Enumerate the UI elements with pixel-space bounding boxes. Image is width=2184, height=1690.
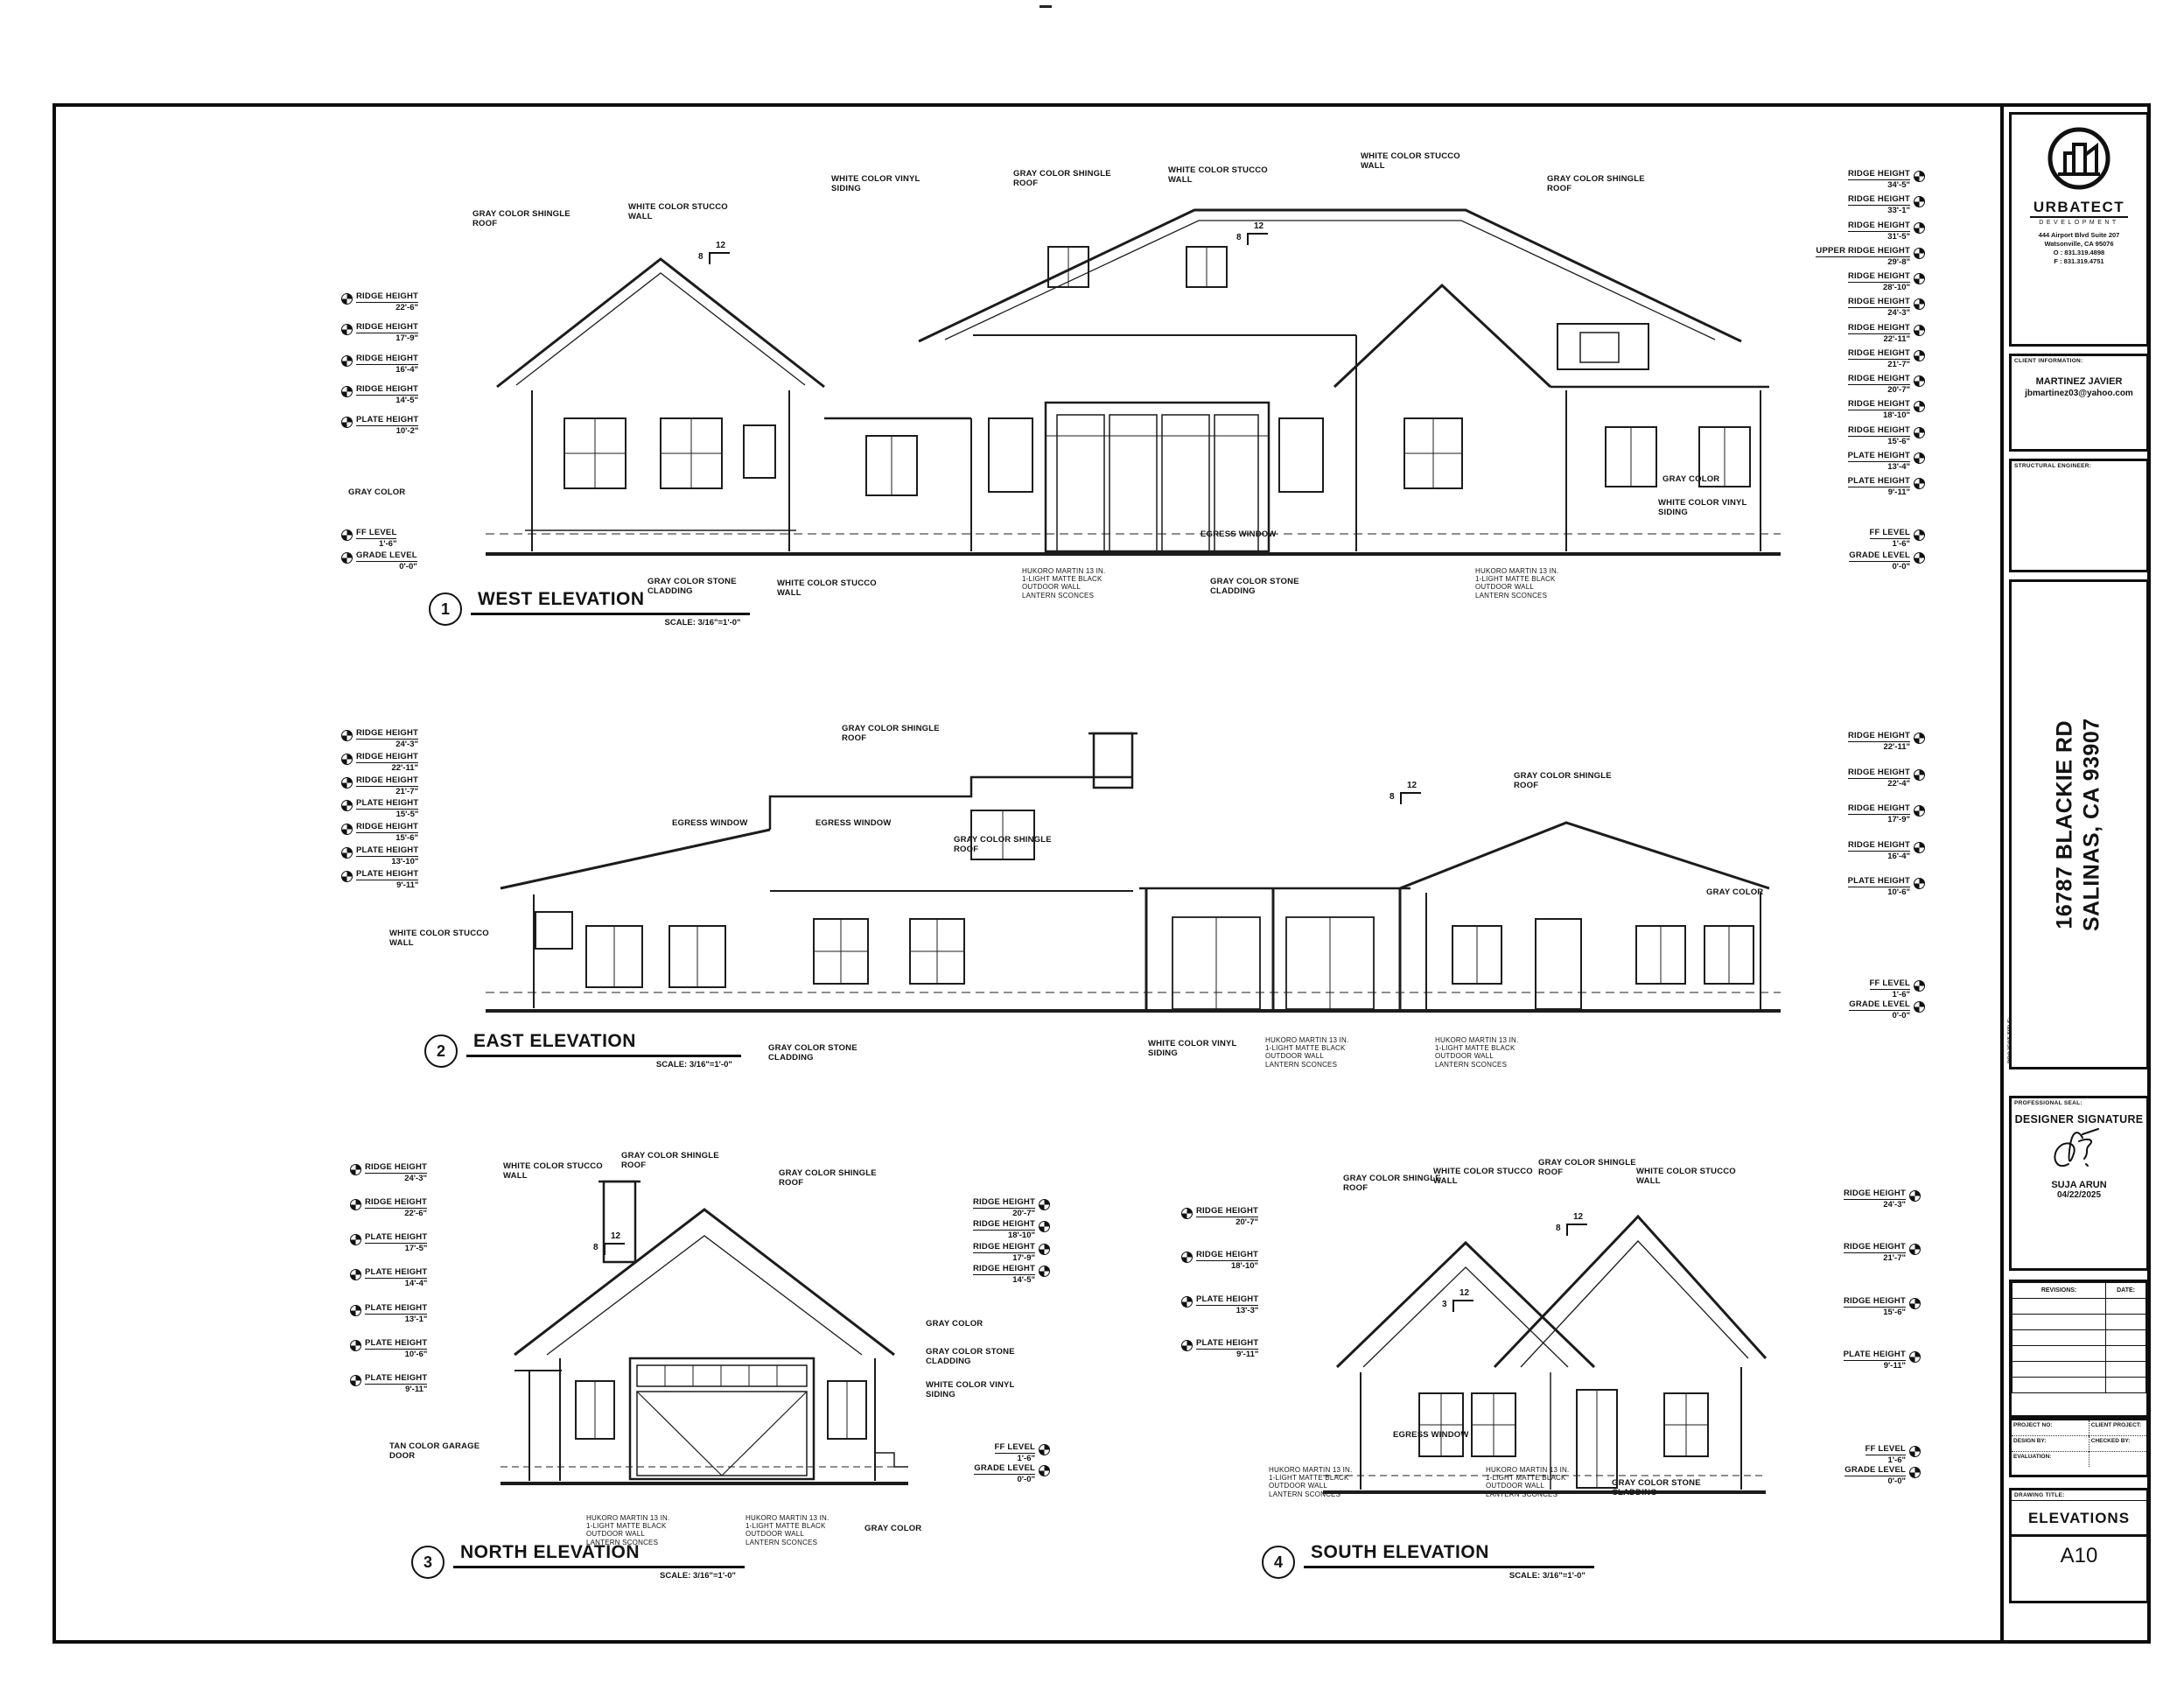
level-marker-icon — [350, 1199, 361, 1210]
dimension-label: RIDGE HEIGHT18'-10" — [919, 1219, 1050, 1240]
north-right-base-dimensions: FF LEVEL1'-6" GRADE LEVEL0'-0" — [919, 1442, 1050, 1484]
south-elevation: RIDGE HEIGHT20'-7" RIDGE HEIGHT18'-10" P… — [1164, 1138, 1934, 1602]
professional-seal-box: PROFESSIONAL SEAL: DESIGNER SIGNATURE SU… — [2009, 1096, 2149, 1271]
level-marker-icon — [1909, 1298, 1921, 1309]
level-marker-icon — [1914, 273, 1925, 284]
material-callout: GRAY COLOR STONE CLADDING — [768, 1044, 871, 1063]
level-marker-icon — [1039, 1465, 1050, 1476]
dimension-label: RIDGE HEIGHT20'-7" — [1181, 1206, 1317, 1227]
seal-section-label: PROFESSIONAL SEAL: — [2012, 1098, 2085, 1106]
project-no-label: PROJECT NO: — [2012, 1420, 2089, 1436]
level-marker-icon — [350, 1234, 361, 1245]
level-marker-icon — [1909, 1244, 1921, 1255]
level-marker-icon — [1914, 350, 1925, 361]
client-section-label: CLIENT INFORMATION: — [2012, 356, 2146, 364]
level-marker-icon — [1909, 1467, 1921, 1478]
dimension-label: RIDGE HEIGHT17'-9" — [341, 322, 472, 343]
level-marker-icon — [341, 754, 353, 765]
dimension-label: RIDGE HEIGHT22'-11" — [1789, 323, 1925, 344]
dimension-label: RIDGE HEIGHT16'-4" — [341, 354, 472, 375]
dimension-label: RIDGE HEIGHT17'-9" — [919, 1242, 1050, 1263]
east-elevation-drawing — [481, 709, 1785, 1037]
revision-row — [2012, 1362, 2146, 1378]
level-marker-icon — [1039, 1221, 1050, 1232]
firm-address-line2: Watsonville, CA 95076 — [2039, 240, 2120, 249]
north-elevation-drawing — [499, 1155, 910, 1505]
level-marker-icon — [341, 293, 353, 305]
level-marker-icon — [350, 1269, 361, 1280]
south-left-dimensions: RIDGE HEIGHT20'-7" RIDGE HEIGHT18'-10" P… — [1181, 1206, 1317, 1359]
dimension-label: RIDGE HEIGHT34'-5" — [1789, 169, 1925, 190]
material-callout: GRAY COLOR — [348, 488, 405, 498]
dimension-label: RIDGE HEIGHT22'-11" — [341, 752, 472, 773]
elevation-scale: SCALE: 3/16"=1'-0" — [665, 618, 750, 628]
level-marker-icon — [1914, 196, 1925, 207]
east-elevation: RIDGE HEIGHT24'-3" RIDGE HEIGHT22'-11" R… — [341, 709, 1925, 1129]
south-right-dimensions: RIDGE HEIGHT24'-3" RIDGE HEIGHT21'-7" RI… — [1776, 1189, 1921, 1371]
revision-row — [2012, 1299, 2146, 1315]
level-marker-icon — [1181, 1296, 1193, 1308]
west-right-base-dimensions: FF LEVEL1'-6" GRADE LEVEL0'-0" — [1789, 528, 1925, 572]
material-callout: WHITE COLOR STUCCO WALL — [389, 929, 493, 949]
material-callout: TAN COLOR GARAGE DOOR — [389, 1442, 493, 1462]
level-marker-icon — [1181, 1252, 1193, 1263]
north-elevation-title: 3 NORTH ELEVATION SCALE: 3/16"=1'-0" — [411, 1542, 745, 1581]
east-left-dimensions: RIDGE HEIGHT24'-3" RIDGE HEIGHT22'-11" R… — [341, 728, 472, 890]
dimension-label: PLATE HEIGHT14'-4" — [350, 1267, 481, 1288]
level-marker-icon — [1181, 1208, 1193, 1219]
dimension-label: RIDGE HEIGHT21'-7" — [1776, 1242, 1921, 1263]
level-marker-icon — [1914, 769, 1925, 781]
project-address-line1: 16787 BLACKIE RD — [2052, 718, 2079, 931]
revision-row — [2012, 1330, 2146, 1346]
west-left-base-dimensions: FF LEVEL1'-6" GRADE LEVEL0'-0" — [341, 528, 472, 572]
dimension-label: PLATE HEIGHT15'-5" — [341, 798, 472, 819]
elevation-title: SOUTH ELEVATION — [1304, 1542, 1594, 1568]
elevation-title: EAST ELEVATION — [466, 1031, 741, 1057]
sheet-title: ELEVATIONS — [2012, 1501, 2146, 1537]
west-elevation-title: 1 WEST ELEVATION SCALE: 3/16"=1'-0" — [429, 589, 750, 628]
level-marker-icon — [1909, 1190, 1921, 1202]
level-marker-icon — [1039, 1199, 1050, 1210]
dimension-label: GRADE LEVEL0'-0" — [919, 1463, 1050, 1484]
east-right-dimensions: RIDGE HEIGHT22'-11" RIDGE HEIGHT22'-4" R… — [1789, 731, 1925, 897]
firm-tagline: DEVELOPMENT — [2039, 220, 2118, 226]
revisions-table-box: REVISIONS: DATE: — [2009, 1280, 2149, 1418]
level-marker-icon — [1914, 552, 1925, 564]
firm-logo-box: URBATECT DEVELOPMENT 444 Airport Blvd Su… — [2009, 112, 2149, 347]
level-marker-icon — [341, 529, 353, 541]
level-marker-icon — [1914, 733, 1925, 744]
dimension-label: GRADE LEVEL0'-0" — [341, 550, 472, 572]
dimension-label: PLATE HEIGHT9'-11" — [1181, 1338, 1317, 1359]
material-callout: GRAY COLOR STONE CLADDING — [926, 1348, 1029, 1367]
material-callout: GRAY COLOR — [864, 1525, 921, 1534]
designer-name: SUJA ARUN — [2051, 1180, 2106, 1190]
dimension-label: GRADE LEVEL0'-0" — [1789, 999, 1925, 1020]
fixture-note: HUKORO MARTIN 13 IN. 1-LIGHT MATTE BLACK… — [1435, 1036, 1526, 1069]
dimension-label: GRADE LEVEL0'-0" — [1789, 550, 1925, 572]
dimension-label: RIDGE HEIGHT22'-4" — [1789, 768, 1925, 789]
client-name: MARTINEZ JAVIER — [2012, 376, 2146, 387]
signature-icon — [2044, 1125, 2114, 1175]
checked-by-label: CHECKED BY: — [2089, 1436, 2146, 1452]
firm-phone-office: O : 831.319.4898 — [2039, 249, 2120, 257]
project-info-box: PROJECT NO: CLIENT PROJECT: DESIGN BY: C… — [2009, 1418, 2149, 1477]
designer-signature-label: DESIGNER SIGNATURE — [2015, 1113, 2144, 1125]
west-elevation: RIDGE HEIGHT22'-6" RIDGE HEIGHT17'-9" RI… — [341, 130, 1925, 663]
level-marker-icon — [1914, 298, 1925, 310]
elevation-number-bubble: 2 — [424, 1034, 458, 1068]
dimension-label: FF LEVEL1'-6" — [1789, 528, 1925, 549]
dimension-label: RIDGE HEIGHT22'-6" — [341, 291, 472, 312]
elevation-scale: SCALE: 3/16"=1'-0" — [656, 1060, 741, 1069]
dimension-label: UPPER RIDGE HEIGHT29'-8" — [1789, 246, 1925, 267]
level-marker-icon — [1914, 401, 1925, 412]
level-marker-icon — [1914, 842, 1925, 853]
dimension-label: RIDGE HEIGHT33'-1" — [1789, 194, 1925, 215]
material-callout: WHITE COLOR VINYL SIDING — [926, 1381, 1029, 1400]
level-marker-icon — [1039, 1266, 1050, 1277]
level-marker-icon — [341, 824, 353, 835]
level-marker-icon — [341, 871, 353, 882]
level-marker-icon — [350, 1164, 361, 1175]
east-right-base-dimensions: FF LEVEL1'-6" GRADE LEVEL0'-0" — [1789, 978, 1925, 1020]
west-right-dimensions: RIDGE HEIGHT34'-5" RIDGE HEIGHT33'-1" RI… — [1789, 169, 1925, 497]
dimension-label: PLATE HEIGHT9'-11" — [1776, 1350, 1921, 1371]
dimension-label: PLATE HEIGHT13'-4" — [1789, 451, 1925, 472]
dimension-label: RIDGE HEIGHT22'-6" — [350, 1197, 481, 1218]
level-marker-icon — [341, 386, 353, 397]
dimension-label: PLATE HEIGHT13'-1" — [350, 1303, 481, 1324]
west-elevation-drawing — [481, 156, 1785, 567]
level-marker-icon — [1914, 980, 1925, 992]
design-by-label: DESIGN BY: — [2012, 1436, 2089, 1452]
dimension-label: RIDGE HEIGHT16'-4" — [1789, 840, 1925, 861]
dimension-label: RIDGE HEIGHT28'-10" — [1789, 271, 1925, 292]
north-elevation: RIDGE HEIGHT24'-3" RIDGE HEIGHT22'-6" PL… — [341, 1138, 1146, 1602]
blank-cell — [2089, 1452, 2146, 1467]
project-address-line2: SALINAS, CA 93907 — [2079, 718, 2106, 931]
level-marker-icon — [1914, 1001, 1925, 1013]
dimension-label: FF LEVEL1'-6" — [1776, 1444, 1921, 1465]
structural-section-label: STRUCTURAL ENGINEER: — [2012, 461, 2146, 469]
dimension-label: GRADE LEVEL0'-0" — [1776, 1465, 1921, 1486]
material-callout: WHITE COLOR STUCCO WALL — [777, 579, 880, 599]
level-marker-icon — [1909, 1446, 1921, 1457]
level-marker-icon — [1914, 248, 1925, 259]
level-marker-icon — [1914, 222, 1925, 234]
sheet-number: A10 — [2012, 1537, 2146, 1575]
dimension-label: FF LEVEL1'-6" — [919, 1442, 1050, 1463]
north-right-dimensions: RIDGE HEIGHT20'-7" RIDGE HEIGHT18'-10" R… — [919, 1197, 1050, 1285]
project-section-label: PROJECT TITLE: — [2007, 1017, 2013, 1063]
elevation-title: NORTH ELEVATION — [453, 1542, 745, 1568]
dimension-label: RIDGE HEIGHT24'-3" — [350, 1162, 481, 1183]
dimension-label: PLATE HEIGHT9'-11" — [350, 1373, 481, 1394]
fixture-note: HUKORO MARTIN 13 IN. 1-LIGHT MATTE BLACK… — [1265, 1036, 1356, 1069]
material-callout: WHITE COLOR VINYL SIDING — [1148, 1040, 1251, 1059]
elevation-title: WEST ELEVATION — [471, 589, 750, 615]
drawing-title-box: DRAWING TITLE: ELEVATIONS A10 — [2009, 1488, 2149, 1603]
dimension-label: RIDGE HEIGHT20'-7" — [1789, 374, 1925, 395]
registration-mark — [1039, 5, 1052, 8]
material-callout: GRAY COLOR — [926, 1320, 983, 1329]
dimension-label: RIDGE HEIGHT17'-9" — [1789, 803, 1925, 824]
west-left-dimensions: RIDGE HEIGHT22'-6" RIDGE HEIGHT17'-9" RI… — [341, 291, 472, 436]
revisions-header: REVISIONS: — [2012, 1283, 2106, 1299]
dimension-label: PLATE HEIGHT10'-6" — [350, 1338, 481, 1359]
dimension-label: PLATE HEIGHT10'-2" — [341, 415, 472, 436]
dimension-label: PLATE HEIGHT9'-11" — [341, 869, 472, 890]
project-title-box: 16787 BLACKIE RD SALINAS, CA 93907 PROJE… — [2009, 579, 2149, 1069]
level-marker-icon — [1914, 452, 1925, 464]
dimension-label: RIDGE HEIGHT15'-6" — [341, 822, 472, 843]
level-marker-icon — [341, 324, 353, 335]
firm-name: URBATECT — [2030, 199, 2128, 218]
level-marker-icon — [1039, 1244, 1050, 1255]
fixture-note: HUKORO MARTIN 13 IN. 1-LIGHT MATTE BLACK… — [745, 1514, 836, 1546]
dimension-label: PLATE HEIGHT9'-11" — [1789, 476, 1925, 497]
revision-date-header: DATE: — [2106, 1283, 2146, 1299]
titleblock-separator — [2000, 103, 2004, 1644]
elevation-number-bubble: 3 — [411, 1546, 444, 1579]
dimension-label: RIDGE HEIGHT20'-7" — [919, 1197, 1050, 1218]
dimension-label: RIDGE HEIGHT22'-11" — [1789, 731, 1925, 752]
level-marker-icon — [350, 1340, 361, 1351]
structural-engineer-box: STRUCTURAL ENGINEER: — [2009, 459, 2149, 572]
dimension-label: RIDGE HEIGHT18'-10" — [1181, 1250, 1317, 1271]
fixture-note: HUKORO MARTIN 13 IN. 1-LIGHT MATTE BLACK… — [1475, 567, 1566, 600]
level-marker-icon — [1914, 427, 1925, 438]
dimension-label: PLATE HEIGHT10'-6" — [1789, 876, 1925, 897]
dimension-label: RIDGE HEIGHT24'-3" — [1776, 1189, 1921, 1210]
drawing-title-section-label: DRAWING TITLE: — [2012, 1490, 2146, 1501]
level-marker-icon — [1914, 325, 1925, 336]
dimension-label: RIDGE HEIGHT21'-7" — [1789, 348, 1925, 369]
dimension-label: FF LEVEL1'-6" — [1789, 978, 1925, 999]
revision-row — [2012, 1346, 2146, 1362]
elevation-scale: SCALE: 3/16"=1'-0" — [660, 1571, 745, 1581]
level-marker-icon — [350, 1375, 361, 1386]
level-marker-icon — [1909, 1351, 1921, 1363]
firm-address-line1: 444 Airport Blvd Suite 207 — [2039, 231, 2120, 240]
dimension-label: PLATE HEIGHT13'-10" — [341, 845, 472, 866]
dimension-label: RIDGE HEIGHT31'-5" — [1789, 221, 1925, 242]
level-marker-icon — [341, 417, 353, 428]
dimension-label: RIDGE HEIGHT15'-6" — [1776, 1296, 1921, 1317]
elevation-number-bubble: 1 — [429, 593, 462, 626]
client-email: jbmartinez03@yahoo.com — [2012, 389, 2146, 398]
fixture-note: HUKORO MARTIN 13 IN. 1-LIGHT MATTE BLACK… — [1022, 567, 1113, 600]
level-marker-icon — [341, 552, 353, 564]
dimension-label: RIDGE HEIGHT24'-3" — [341, 728, 472, 749]
level-marker-icon — [1914, 529, 1925, 541]
dimension-label: PLATE HEIGHT17'-5" — [350, 1232, 481, 1253]
drawing-sheet: RIDGE HEIGHT22'-6" RIDGE HEIGHT17'-9" RI… — [0, 0, 2184, 1690]
evaluation-label: EVALUATION: — [2012, 1452, 2089, 1467]
east-elevation-title: 2 EAST ELEVATION SCALE: 3/16"=1'-0" — [424, 1031, 741, 1069]
level-marker-icon — [341, 355, 353, 367]
elevation-number-bubble: 4 — [1262, 1546, 1295, 1579]
signature-date: 04/22/2025 — [2057, 1190, 2101, 1200]
dimension-label: RIDGE HEIGHT24'-3" — [1789, 297, 1925, 318]
level-marker-icon — [1181, 1340, 1193, 1351]
dimension-label: RIDGE HEIGHT21'-7" — [341, 775, 472, 796]
dimension-label: RIDGE HEIGHT18'-10" — [1789, 399, 1925, 420]
level-marker-icon — [341, 777, 353, 789]
level-marker-icon — [1914, 171, 1925, 182]
north-left-dimensions: RIDGE HEIGHT24'-3" RIDGE HEIGHT22'-6" PL… — [350, 1162, 481, 1394]
revision-row — [2012, 1378, 2146, 1393]
dimension-label: RIDGE HEIGHT14'-5" — [341, 384, 472, 405]
level-marker-icon — [341, 847, 353, 859]
level-marker-icon — [1039, 1444, 1050, 1455]
level-marker-icon — [1914, 878, 1925, 889]
material-callout: GRAY COLOR STONE CLADDING — [1210, 578, 1313, 597]
level-marker-icon — [341, 730, 353, 741]
client-info-box: CLIENT INFORMATION: MARTINEZ JAVIER jbma… — [2009, 354, 2149, 452]
urbatect-logo-icon — [2039, 123, 2119, 199]
south-elevation-drawing — [1321, 1164, 1767, 1514]
dimension-label: RIDGE HEIGHT15'-6" — [1789, 425, 1925, 446]
south-elevation-title: 4 SOUTH ELEVATION SCALE: 3/16"=1'-0" — [1262, 1542, 1594, 1581]
south-right-base-dimensions: FF LEVEL1'-6" GRADE LEVEL0'-0" — [1776, 1444, 1921, 1486]
level-marker-icon — [1914, 375, 1925, 387]
level-marker-icon — [1914, 478, 1925, 489]
level-marker-icon — [350, 1305, 361, 1316]
dimension-label: FF LEVEL1'-6" — [341, 528, 472, 549]
revision-row — [2012, 1315, 2146, 1330]
level-marker-icon — [1914, 805, 1925, 817]
dimension-label: RIDGE HEIGHT14'-5" — [919, 1264, 1050, 1285]
client-project-label: CLIENT PROJECT: — [2089, 1420, 2146, 1436]
dimension-label: PLATE HEIGHT13'-3" — [1181, 1294, 1317, 1315]
firm-phone-fax: F : 831.319.4751 — [2039, 257, 2120, 266]
level-marker-icon — [341, 800, 353, 811]
elevation-scale: SCALE: 3/16"=1'-0" — [1509, 1571, 1594, 1581]
